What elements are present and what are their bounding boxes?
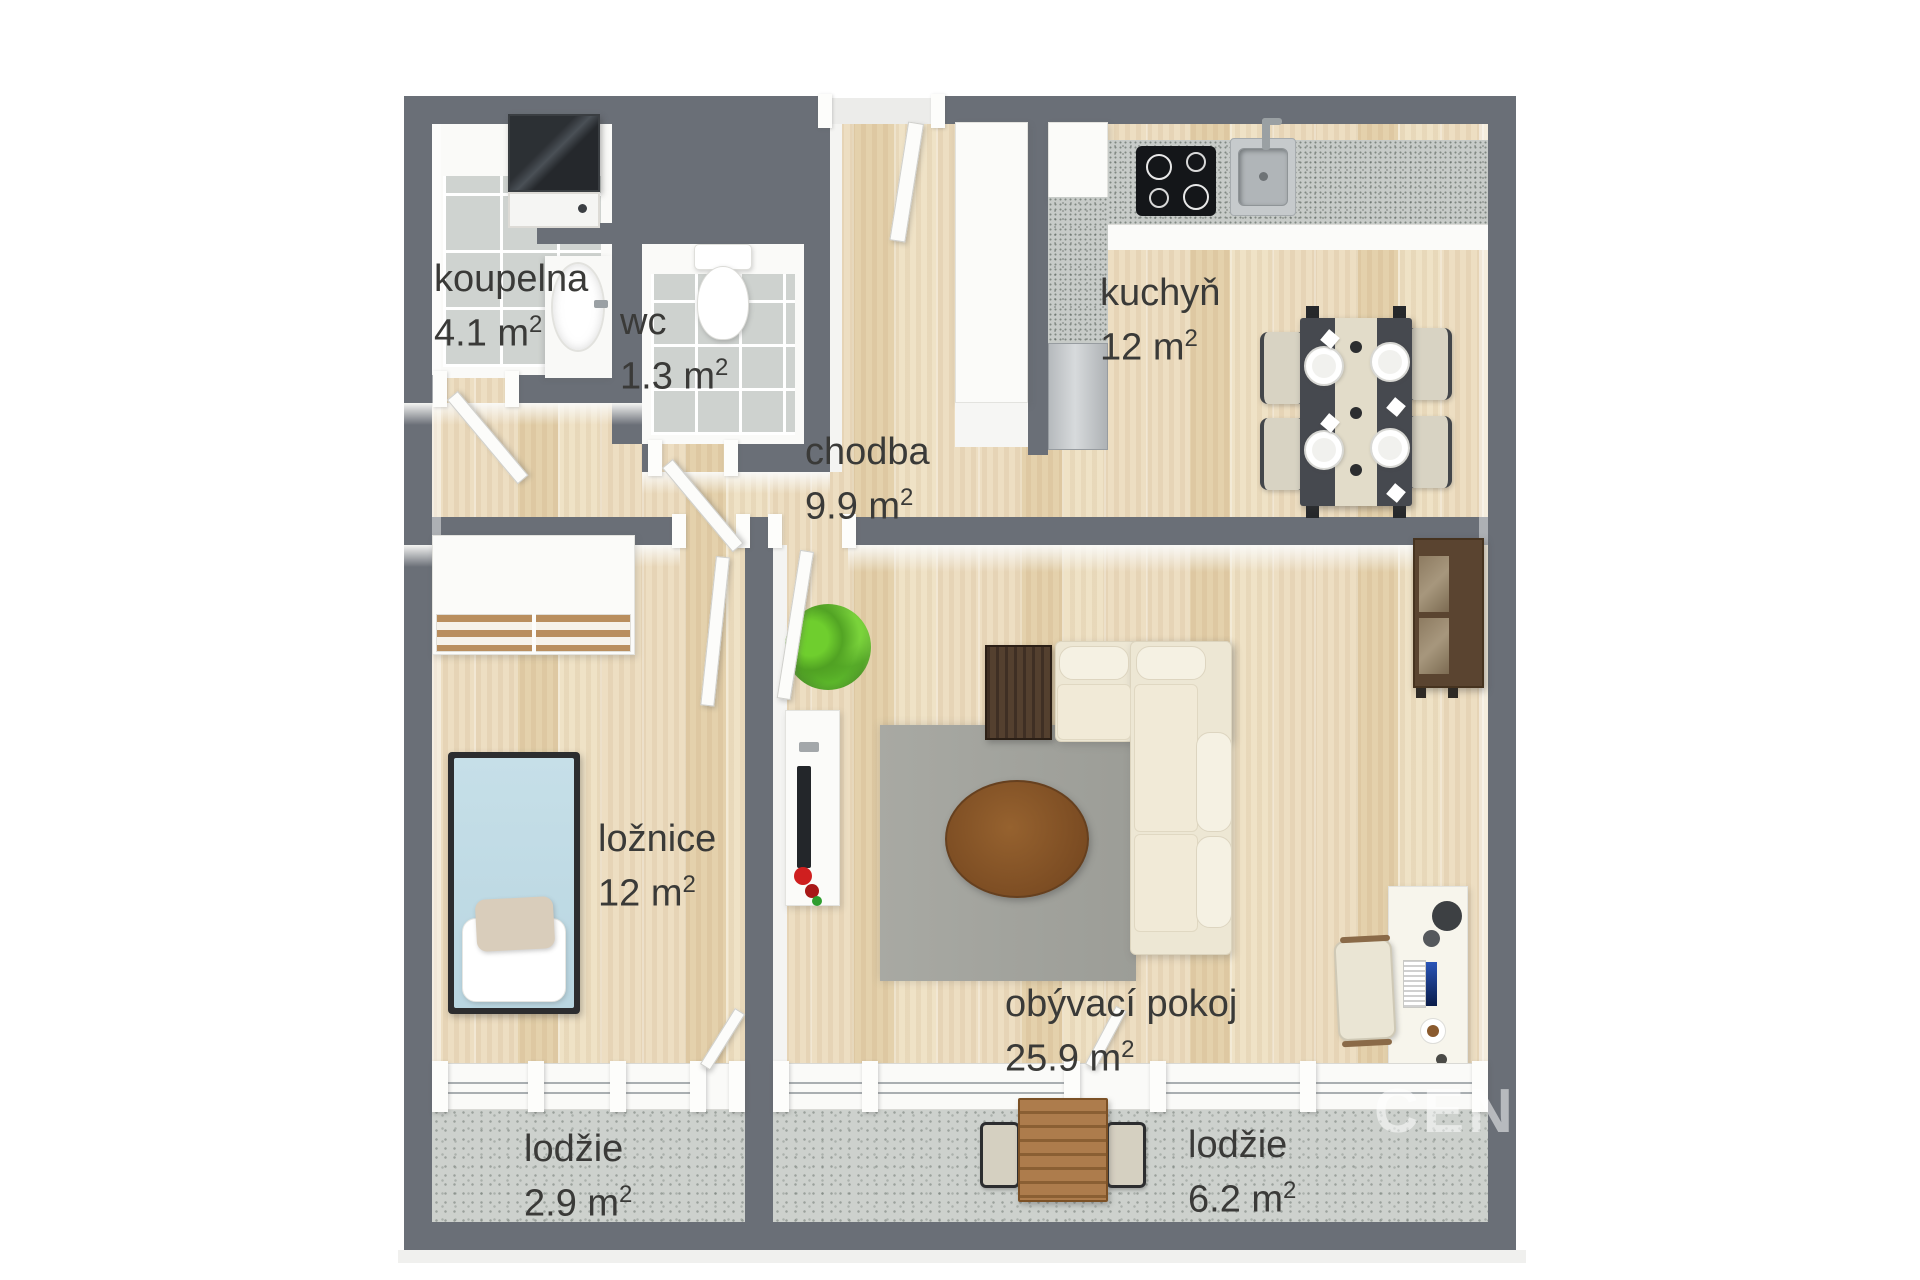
wall-divider bbox=[745, 517, 773, 1250]
room-area: 1.3 m2 bbox=[620, 345, 728, 400]
dining-chair bbox=[1406, 328, 1452, 400]
door-jamb bbox=[818, 94, 832, 128]
room-label-lodzie-velka: lodžie 6.2 m2 bbox=[1188, 1122, 1296, 1223]
room-label-kuchyn: kuchyň 12 m2 bbox=[1100, 270, 1220, 371]
room-area: 12 m2 bbox=[598, 862, 716, 917]
laptop-screen bbox=[1426, 962, 1437, 1006]
burner-icon bbox=[1183, 184, 1209, 210]
window-glass bbox=[878, 1082, 1064, 1084]
window-glass bbox=[626, 1092, 690, 1094]
sofa-seat-cushion bbox=[1134, 684, 1198, 832]
desk-lamp-icon bbox=[1423, 930, 1440, 947]
room-name: wc bbox=[620, 299, 728, 345]
room-label-loznice: ložnice 12 m2 bbox=[598, 816, 716, 917]
sofa-bolster-cushion bbox=[1196, 732, 1232, 832]
kitchen-corner-cabinet bbox=[1048, 122, 1108, 200]
cabinet-leg bbox=[1416, 688, 1426, 698]
desk-lamp-icon bbox=[1432, 901, 1462, 931]
room-label-chodba: chodba 9.9 m2 bbox=[805, 429, 930, 530]
sofa-bolster-cushion bbox=[1196, 836, 1232, 928]
shower bbox=[508, 114, 600, 192]
wall-left bbox=[404, 96, 432, 1250]
sofa-side-table bbox=[985, 645, 1052, 740]
window-glass bbox=[789, 1092, 862, 1094]
desk-chair bbox=[1333, 939, 1396, 1042]
door-jamb bbox=[724, 440, 738, 476]
sofa-back-cushion bbox=[1059, 646, 1129, 680]
door-jamb bbox=[505, 371, 519, 407]
laptop-keyboard bbox=[1403, 960, 1426, 1008]
room-area: 12 m2 bbox=[1100, 316, 1220, 371]
window-post bbox=[862, 1061, 878, 1112]
floorplan-canvas: koupelna 4.1 m2 wc 1.3 m2 chodba 9.9 m2 … bbox=[0, 0, 1920, 1280]
wall-wc-right bbox=[804, 96, 830, 472]
window-glass bbox=[1166, 1082, 1300, 1084]
hall-closet-face bbox=[955, 403, 1028, 447]
room-area: 6.2 m2 bbox=[1188, 1168, 1296, 1223]
wall-kitchen-living bbox=[848, 517, 1488, 545]
window-post bbox=[729, 1061, 745, 1112]
cabinet-glass-panel bbox=[1419, 556, 1449, 612]
kitchen-appliance bbox=[1048, 343, 1108, 450]
tv bbox=[797, 766, 811, 868]
outdoor-chair bbox=[1106, 1122, 1146, 1188]
sofa-seat-cushion bbox=[1057, 684, 1131, 740]
decor-green-icon bbox=[812, 896, 822, 906]
decor-red-icon bbox=[794, 867, 812, 885]
room-name: obývací pokoj bbox=[1005, 981, 1237, 1027]
plate-icon bbox=[1370, 428, 1410, 468]
window-glass bbox=[1166, 1092, 1300, 1094]
door-jamb bbox=[672, 514, 686, 548]
sink-faucet-icon bbox=[1262, 118, 1282, 125]
hall-closet bbox=[955, 122, 1028, 403]
window-glass bbox=[448, 1092, 528, 1094]
window-glass bbox=[448, 1082, 528, 1084]
wall-top-right bbox=[935, 96, 1516, 124]
window-post bbox=[610, 1061, 626, 1112]
window-glass bbox=[626, 1082, 690, 1084]
watermark: CENT bbox=[1374, 1076, 1559, 1147]
sofa-seat-cushion bbox=[1134, 834, 1198, 932]
plate-icon bbox=[1370, 342, 1410, 382]
room-area: 4.1 m2 bbox=[434, 302, 588, 357]
room-name: ložnice bbox=[598, 816, 716, 862]
door-jamb bbox=[648, 440, 662, 476]
window-glass bbox=[544, 1082, 610, 1084]
kitchen-cabinet-band bbox=[1108, 224, 1488, 250]
basin-faucet-icon bbox=[594, 300, 608, 308]
room-name: lodžie bbox=[1188, 1122, 1296, 1168]
window-glass bbox=[878, 1092, 1064, 1094]
room-area: 25.9 m2 bbox=[1005, 1027, 1237, 1082]
room-label-obyvaci-pokoj: obývací pokoj 25.9 m2 bbox=[1005, 981, 1237, 1082]
cup-icon bbox=[1350, 407, 1362, 419]
room-area: 9.9 m2 bbox=[805, 475, 930, 530]
sofa-back-cushion bbox=[1136, 646, 1206, 680]
door-jamb bbox=[931, 94, 945, 128]
window-post bbox=[1300, 1061, 1316, 1112]
entry-threshold bbox=[830, 98, 933, 124]
dining-chair bbox=[1406, 416, 1452, 488]
wardrobe-shelf-divider bbox=[532, 614, 536, 652]
room-name: kuchyň bbox=[1100, 270, 1220, 316]
sink-drain-icon bbox=[1259, 172, 1268, 181]
room-name: chodba bbox=[805, 429, 930, 475]
room-label-lodzie-mala: lodžie 2.9 m2 bbox=[524, 1126, 632, 1227]
coffee-cup-icon bbox=[1427, 1025, 1439, 1037]
burner-icon bbox=[1149, 188, 1169, 208]
cabinet-glass-panel bbox=[1419, 618, 1449, 674]
wall-kitchen-left bbox=[1028, 96, 1048, 455]
outdoor-chair bbox=[980, 1122, 1020, 1188]
slab-skirt bbox=[398, 1250, 1526, 1263]
soundbar-icon bbox=[799, 742, 819, 752]
room-label-wc: wc 1.3 m2 bbox=[620, 299, 728, 400]
face-kitchen-living bbox=[848, 545, 1420, 572]
cup-icon bbox=[1350, 341, 1362, 353]
plate-icon bbox=[1304, 346, 1344, 386]
cup-icon bbox=[1350, 464, 1362, 476]
room-name: lodžie bbox=[524, 1126, 632, 1172]
shower-head-icon bbox=[578, 204, 587, 213]
cabinet-leg bbox=[1448, 688, 1458, 698]
burner-icon bbox=[1146, 154, 1172, 180]
coffee-table bbox=[945, 780, 1089, 898]
door-jamb bbox=[768, 514, 782, 548]
plate-icon bbox=[1304, 430, 1344, 470]
window-glass bbox=[789, 1082, 862, 1084]
face-wc-east bbox=[830, 124, 842, 472]
window-glass bbox=[544, 1092, 610, 1094]
kitchen-side-counter bbox=[1048, 197, 1108, 343]
window-post bbox=[690, 1061, 706, 1112]
bed-cushion bbox=[475, 896, 556, 952]
door-jamb bbox=[433, 371, 447, 407]
room-name: koupelna bbox=[434, 256, 588, 302]
window-post bbox=[432, 1061, 448, 1112]
window-post bbox=[773, 1061, 789, 1112]
room-label-koupelna: koupelna 4.1 m2 bbox=[434, 256, 588, 357]
burner-icon bbox=[1186, 152, 1206, 172]
outdoor-table bbox=[1018, 1098, 1108, 1202]
window-post bbox=[528, 1061, 544, 1112]
room-area: 2.9 m2 bbox=[524, 1172, 632, 1227]
